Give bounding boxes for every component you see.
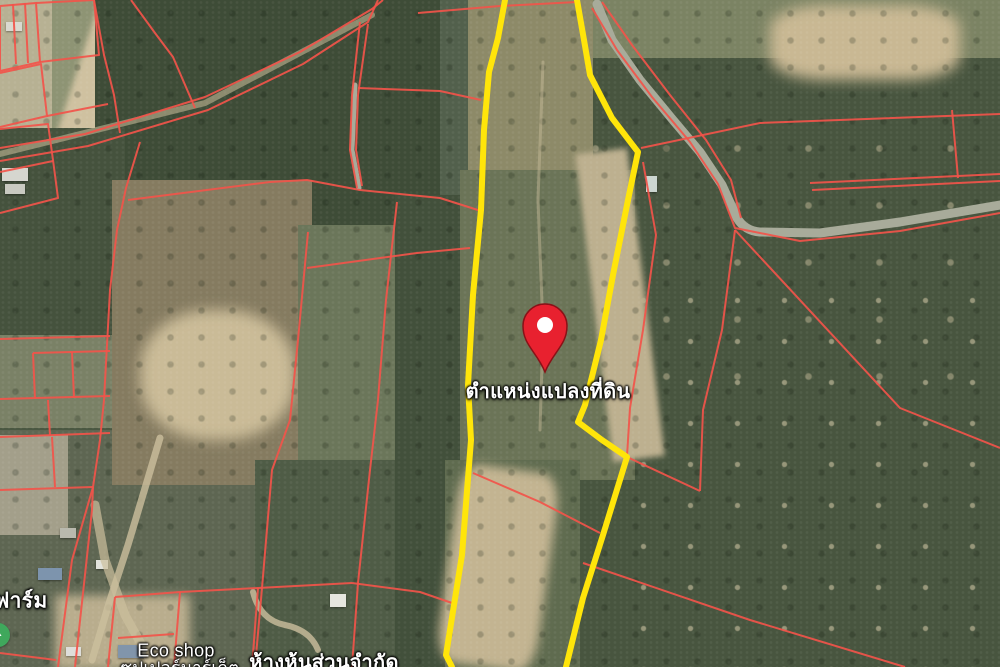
parcel-boundary-line — [72, 352, 74, 398]
selected-parcel-outline[interactable] — [566, 0, 638, 667]
parcel-boundary-line — [52, 437, 55, 487]
location-pin-hole — [537, 317, 553, 333]
parcel-boundary-line — [627, 162, 656, 456]
parcel-boundary-line — [952, 110, 958, 178]
parcel-boundary-line — [0, 161, 53, 172]
parcel-boundary-line — [255, 232, 308, 667]
parcel-boundary-line — [75, 142, 140, 667]
parcel-boundary-line — [0, 124, 58, 213]
map-label-partnership: ห้างหุ้นส่วนจำกัด — [249, 646, 399, 667]
satellite-map-view[interactable]: ตำแหน่งแปลงที่ดินฟาร์มEco shopซุปเปอร์มา… — [0, 0, 1000, 667]
parcel-boundary-line — [128, 180, 481, 211]
parcel-boundary-line — [0, 3, 40, 71]
map-label-farm: ฟาร์ม — [0, 585, 47, 618]
parcel-boundary-line — [583, 563, 905, 667]
parcel-boundary-line — [473, 473, 600, 533]
parcel-boundary-line — [33, 353, 35, 399]
parcel-boundary-line — [307, 248, 470, 268]
dirt-track — [0, 15, 372, 154]
parcel-boundary-line — [0, 433, 110, 437]
parcel-boundary-line — [627, 457, 700, 491]
parcel-boundary-line — [131, 0, 195, 108]
parcel-boundary-line — [13, 4, 16, 64]
parcel-boundary-line — [0, 64, 47, 127]
parcel-boundary-line — [735, 230, 1000, 448]
location-pin-icon[interactable] — [523, 304, 567, 372]
parcel-boundary-line — [0, 653, 56, 660]
parcel-boundary-line — [47, 104, 108, 116]
parcel-boundary-line — [358, 88, 481, 100]
dirt-track — [253, 592, 318, 650]
map-label-supermarket: ซุปเปอร์มาร์เก็ต — [121, 655, 240, 667]
parcel-boundary-line — [48, 400, 50, 436]
road — [597, 4, 1000, 233]
parcel-boundary-line — [0, 336, 110, 339]
tree-icon — [0, 629, 4, 641]
parcel-boundary-line — [94, 0, 120, 133]
map-vector-layer — [0, 0, 1000, 667]
selected-parcel-outline[interactable] — [446, 0, 505, 667]
parcel-boundary-line — [40, 0, 99, 62]
parcel-boundary-line — [592, 8, 1000, 241]
parcel-boundary-line — [352, 583, 452, 603]
parcel-boundary-line — [58, 487, 93, 667]
parcel-boundary-line — [0, 396, 110, 399]
parcel-boundary-line — [0, 0, 383, 148]
parcel-boundary-line — [25, 3, 28, 63]
parcel-boundary-line — [418, 2, 577, 13]
parcel-boundary-line — [352, 202, 397, 667]
map-label-parcel-location: ตำแหน่งแปลงที่ดิน — [466, 375, 631, 407]
parcel-boundary-line — [36, 0, 94, 3]
parcel-boundary-line — [115, 583, 352, 597]
parcel-boundary-line — [700, 230, 735, 491]
parcel-boundary-line — [118, 634, 174, 638]
parcel-boundary-line — [0, 487, 93, 490]
